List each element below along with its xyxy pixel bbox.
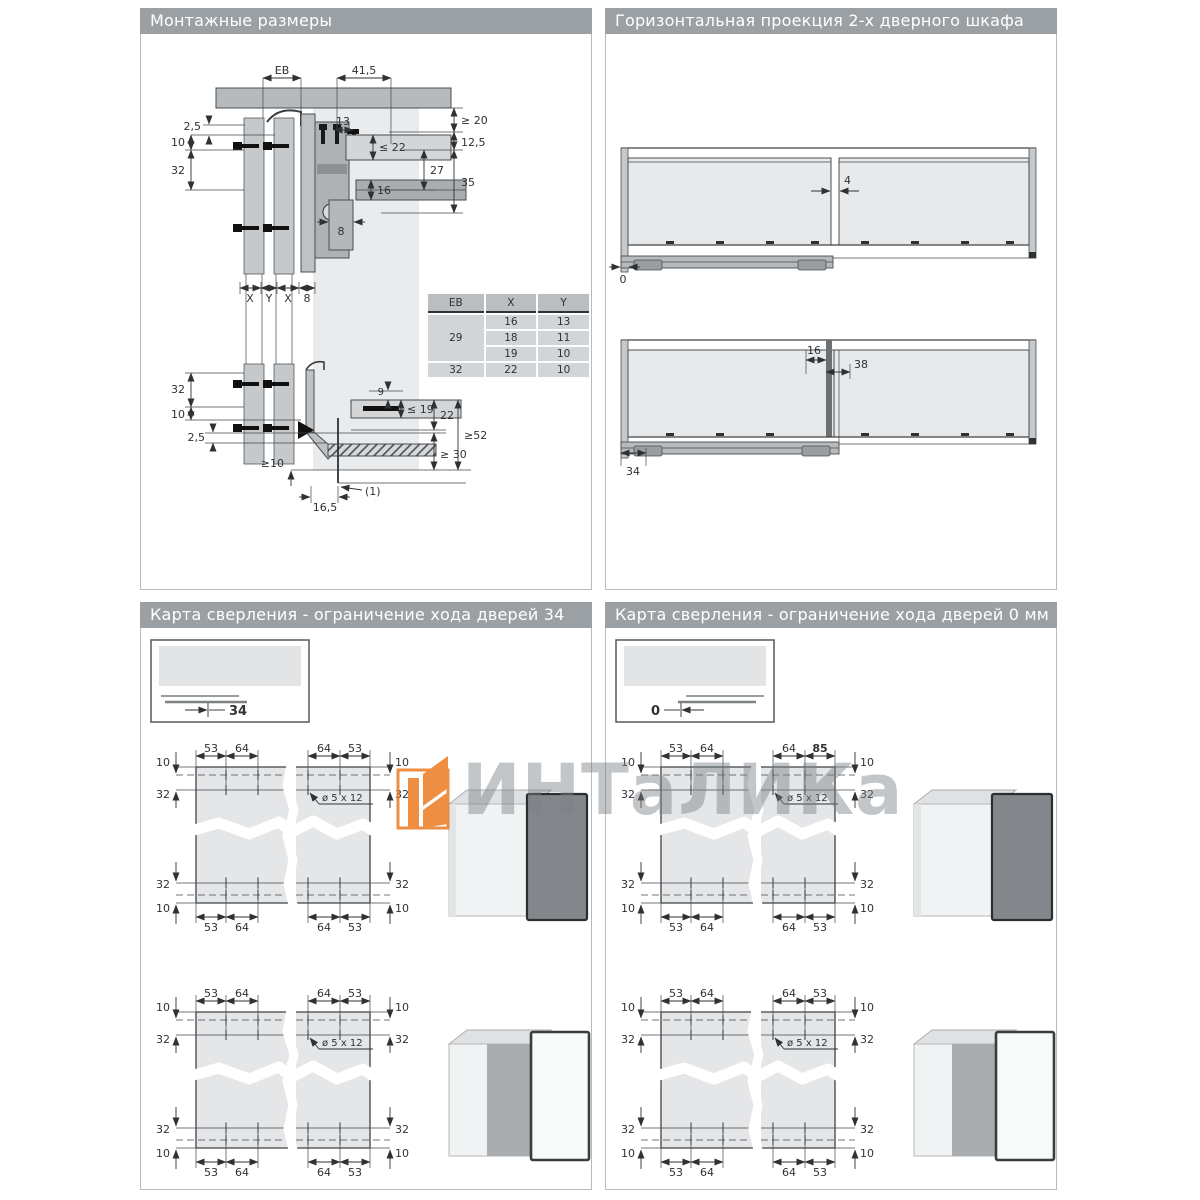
table-cell: 11 <box>538 331 589 345</box>
drill-group-1 <box>641 750 855 924</box>
dim-label: 10 <box>860 902 874 915</box>
dim-label: 53 <box>813 921 827 934</box>
inset-label: 34 <box>229 704 247 719</box>
drill-group-2 <box>176 995 390 1169</box>
panel-title: Монтажные размеры <box>150 11 332 30</box>
dim-label: 12,5 <box>461 136 486 149</box>
dim-label: 13 <box>336 115 350 128</box>
cabinet-top-view-offset <box>621 340 1036 466</box>
panel-body: 0 53 64 64 85 53 64 64 53 10 32 <box>605 628 1057 1190</box>
dim-label: 64 <box>782 921 796 934</box>
table-cell: 10 <box>538 363 589 377</box>
panel-body: EB 41,5 ≥ 20 12,5 35 27 ≤ 22 13 16 8 2,5… <box>140 34 592 590</box>
dim-label: 10 <box>171 136 185 149</box>
panel-horizontal-projection: Горизонтальная проекция 2-х дверного шка… <box>605 8 1057 590</box>
panel-title: Горизонтальная проекция 2-х дверного шка… <box>615 11 1024 30</box>
panel-header: Горизонтальная проекция 2-х дверного шка… <box>605 8 1057 34</box>
horizontal-projection-drawing: 4 0 16 38 34 <box>606 34 1058 590</box>
eb-xy-table: EB X Y 29 16 13 18 11 19 10 <box>426 292 591 379</box>
panel-title: Карта сверления - ограничение хода двере… <box>615 605 1049 624</box>
inset-travel-0: 0 <box>616 640 774 722</box>
table-header-row: EB X Y <box>428 294 589 313</box>
dim-label: 64 <box>782 742 796 755</box>
dim-label: 32 <box>171 383 185 396</box>
dim-label: 64 <box>700 742 714 755</box>
dim-label: 22 <box>440 409 454 422</box>
dim-label: 16 <box>807 344 821 357</box>
table-cell: 19 <box>486 347 537 361</box>
dim-label: 32 <box>171 164 185 177</box>
dim-label: 32 <box>621 878 635 891</box>
table-cell: 18 <box>486 331 537 345</box>
drill-group-1 <box>176 750 390 924</box>
dim-label: EB <box>275 64 290 77</box>
table-cell: 29 <box>428 315 484 361</box>
dim-label: 8 <box>304 292 311 305</box>
dim-label: 53 <box>669 742 683 755</box>
panel-body: 34 <box>140 628 592 1190</box>
dim-label: Y <box>265 292 273 305</box>
panel-drilling-map-34: Карта сверления - ограничение хода двере… <box>140 602 592 1190</box>
dim-label: 10 <box>621 756 635 769</box>
table-cell: 10 <box>538 347 589 361</box>
dim-label: 10 <box>621 902 635 915</box>
dim-label: ≥ 30 <box>440 448 467 461</box>
dim-label: 35 <box>461 176 475 189</box>
dim-label: 27 <box>430 164 444 177</box>
panel-mounting-dimensions: Монтажные размеры <box>140 8 592 590</box>
table-row: 29 16 13 <box>428 315 589 329</box>
dim-label: 2,5 <box>184 120 202 133</box>
panel-header: Монтажные размеры <box>140 8 592 34</box>
dim-label: 10 <box>860 756 874 769</box>
dim-label: (1) <box>365 485 381 498</box>
drill-group-2 <box>641 995 855 1169</box>
dim-label: 41,5 <box>352 64 377 77</box>
dim-label: 2,5 <box>188 431 206 444</box>
dim-label: 9 <box>378 387 384 398</box>
dim-label: ≤ 22 <box>379 141 406 154</box>
table-header: Y <box>538 294 589 313</box>
thumbnail-closed <box>914 790 1052 920</box>
table-cell: 22 <box>486 363 537 377</box>
panel-body: 4 0 16 38 34 <box>605 34 1057 590</box>
dim-label: ≤ 19 <box>407 403 434 416</box>
page: 53 64 64 53 53 64 64 53 10 32 32 10 10 3… <box>0 0 1200 1200</box>
inset-label: 0 <box>651 704 660 719</box>
table-cell: 13 <box>538 315 589 329</box>
dim-label: ≥52 <box>464 429 487 442</box>
table-cell: 32 <box>428 363 484 377</box>
hole-size-label: ø 5 x 12 <box>787 793 828 804</box>
panel-drilling-map-0: Карта сверления - ограничение хода двере… <box>605 602 1057 1190</box>
dim-label: X <box>246 292 254 305</box>
dim-label: 32 <box>860 878 874 891</box>
dim-label: 32 <box>621 788 635 801</box>
panel-header: Карта сверления - ограничение хода двере… <box>140 602 592 628</box>
section-drawing <box>216 88 471 483</box>
dim-label: 32 <box>860 788 874 801</box>
table-header: X <box>486 294 537 313</box>
dim-label: 38 <box>854 358 868 371</box>
dim-label: 64 <box>700 921 714 934</box>
thumbnail-open <box>914 1030 1054 1160</box>
dim-label: 4 <box>844 174 851 187</box>
drilling-map-34-drawing: 34 <box>141 628 593 1190</box>
dim-label: 53 <box>669 921 683 934</box>
dim-label: 8 <box>338 225 345 238</box>
dim-label: 34 <box>626 465 640 478</box>
inset-travel-34: 34 <box>151 640 309 722</box>
drilling-map-0-drawing: 0 53 64 64 85 53 64 64 53 10 32 <box>606 628 1058 1190</box>
dim-label: ≥10 <box>261 457 284 470</box>
dim-label: 16,5 <box>313 501 338 514</box>
table-cell: 16 <box>486 315 537 329</box>
cabinet-top-view-closed <box>609 148 1036 272</box>
table-header: EB <box>428 294 484 313</box>
dim-label: ≥ 20 <box>461 114 488 127</box>
thumbnail-closed <box>449 790 587 920</box>
dim-label: X <box>284 292 292 305</box>
panel-header: Карта сверления - ограничение хода двере… <box>605 602 1057 628</box>
dim-label: 10 <box>171 408 185 421</box>
dim-label: 85 <box>812 742 827 755</box>
dim-label: 0 <box>620 273 627 286</box>
table-row: 32 22 10 <box>428 363 589 377</box>
dim-label: 16 <box>377 184 391 197</box>
thumbnail-open <box>449 1030 589 1160</box>
